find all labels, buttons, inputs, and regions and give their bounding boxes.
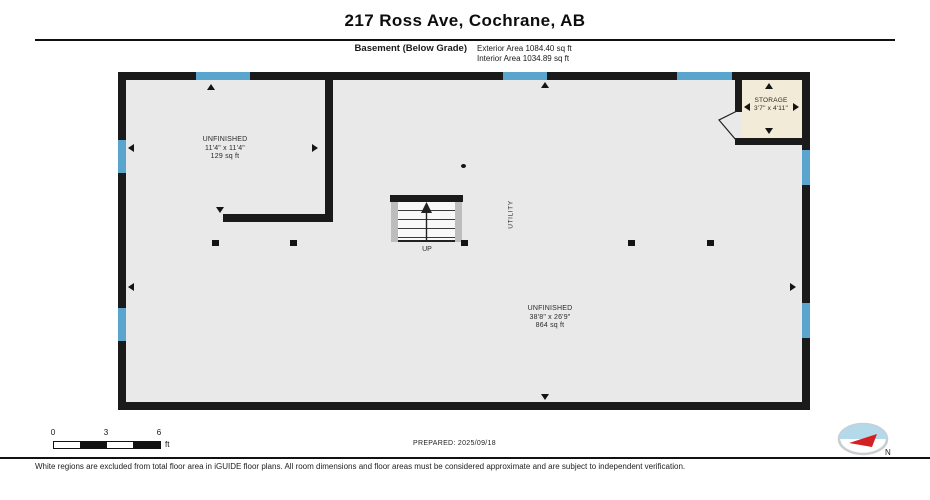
scale-tick-3: 3	[100, 428, 112, 437]
exterior-area: Exterior Area 1084.40 sq ft	[477, 44, 572, 54]
support-post	[290, 240, 297, 246]
compass-north-label: N	[885, 448, 891, 457]
floorplan-page: 217 Ross Ave, Cochrane, AB Basement (Bel…	[0, 0, 930, 500]
compass-sky-half	[839, 424, 887, 439]
dimension-arrow-down-icon	[216, 207, 224, 213]
scale-bar	[53, 441, 161, 449]
dimension-arrow-up-icon	[765, 83, 773, 89]
dimension-arrow-right-icon	[790, 283, 796, 291]
dimension-arrow-right-icon	[793, 103, 799, 111]
support-post	[461, 240, 468, 246]
scale-bar-segment	[80, 442, 107, 448]
door-swing-icon	[719, 111, 737, 140]
scale-tick-0: 0	[47, 428, 59, 437]
area-summary: Exterior Area 1084.40 sq ft Interior Are…	[477, 44, 572, 64]
room-label-unfinished-main: UNFINISHED 38'8" x 26'9" 864 sq ft	[490, 305, 610, 331]
dimension-arrow-up-icon	[207, 84, 215, 90]
dimension-arrow-left-icon	[744, 103, 750, 111]
north-compass-icon: N	[836, 422, 894, 462]
dimension-arrow-right-icon	[312, 144, 318, 152]
disclaimer-text: White regions are excluded from total fl…	[35, 462, 795, 471]
support-post	[628, 240, 635, 246]
footer-divider	[0, 457, 930, 459]
scale-tick-6: 6	[153, 428, 165, 437]
dimension-arrow-down-icon	[765, 128, 773, 134]
interior-area: Interior Area 1034.89 sq ft	[477, 54, 572, 64]
scale-unit-label: ft	[165, 440, 169, 449]
page-title: 217 Ross Ave, Cochrane, AB	[0, 11, 930, 31]
title-divider	[35, 39, 895, 41]
scale-bar-segment	[133, 442, 160, 448]
dimension-arrow-left-icon	[128, 144, 134, 152]
floor-drain-dot	[461, 164, 466, 168]
support-post	[212, 240, 219, 246]
stairs-up-arrowhead-icon	[421, 202, 432, 213]
dimension-arrow-left-icon	[128, 283, 134, 291]
support-post	[707, 240, 714, 246]
prepared-date: PREPARED: 2025/09/18	[413, 440, 496, 447]
room-label-unfinished-small: UNFINISHED 11'4" x 11'4" 129 sq ft	[165, 136, 285, 162]
floor-label: Basement (Below Grade)	[300, 43, 467, 54]
dimension-arrow-up-icon	[541, 82, 549, 88]
dimension-arrow-down-icon	[541, 394, 549, 400]
